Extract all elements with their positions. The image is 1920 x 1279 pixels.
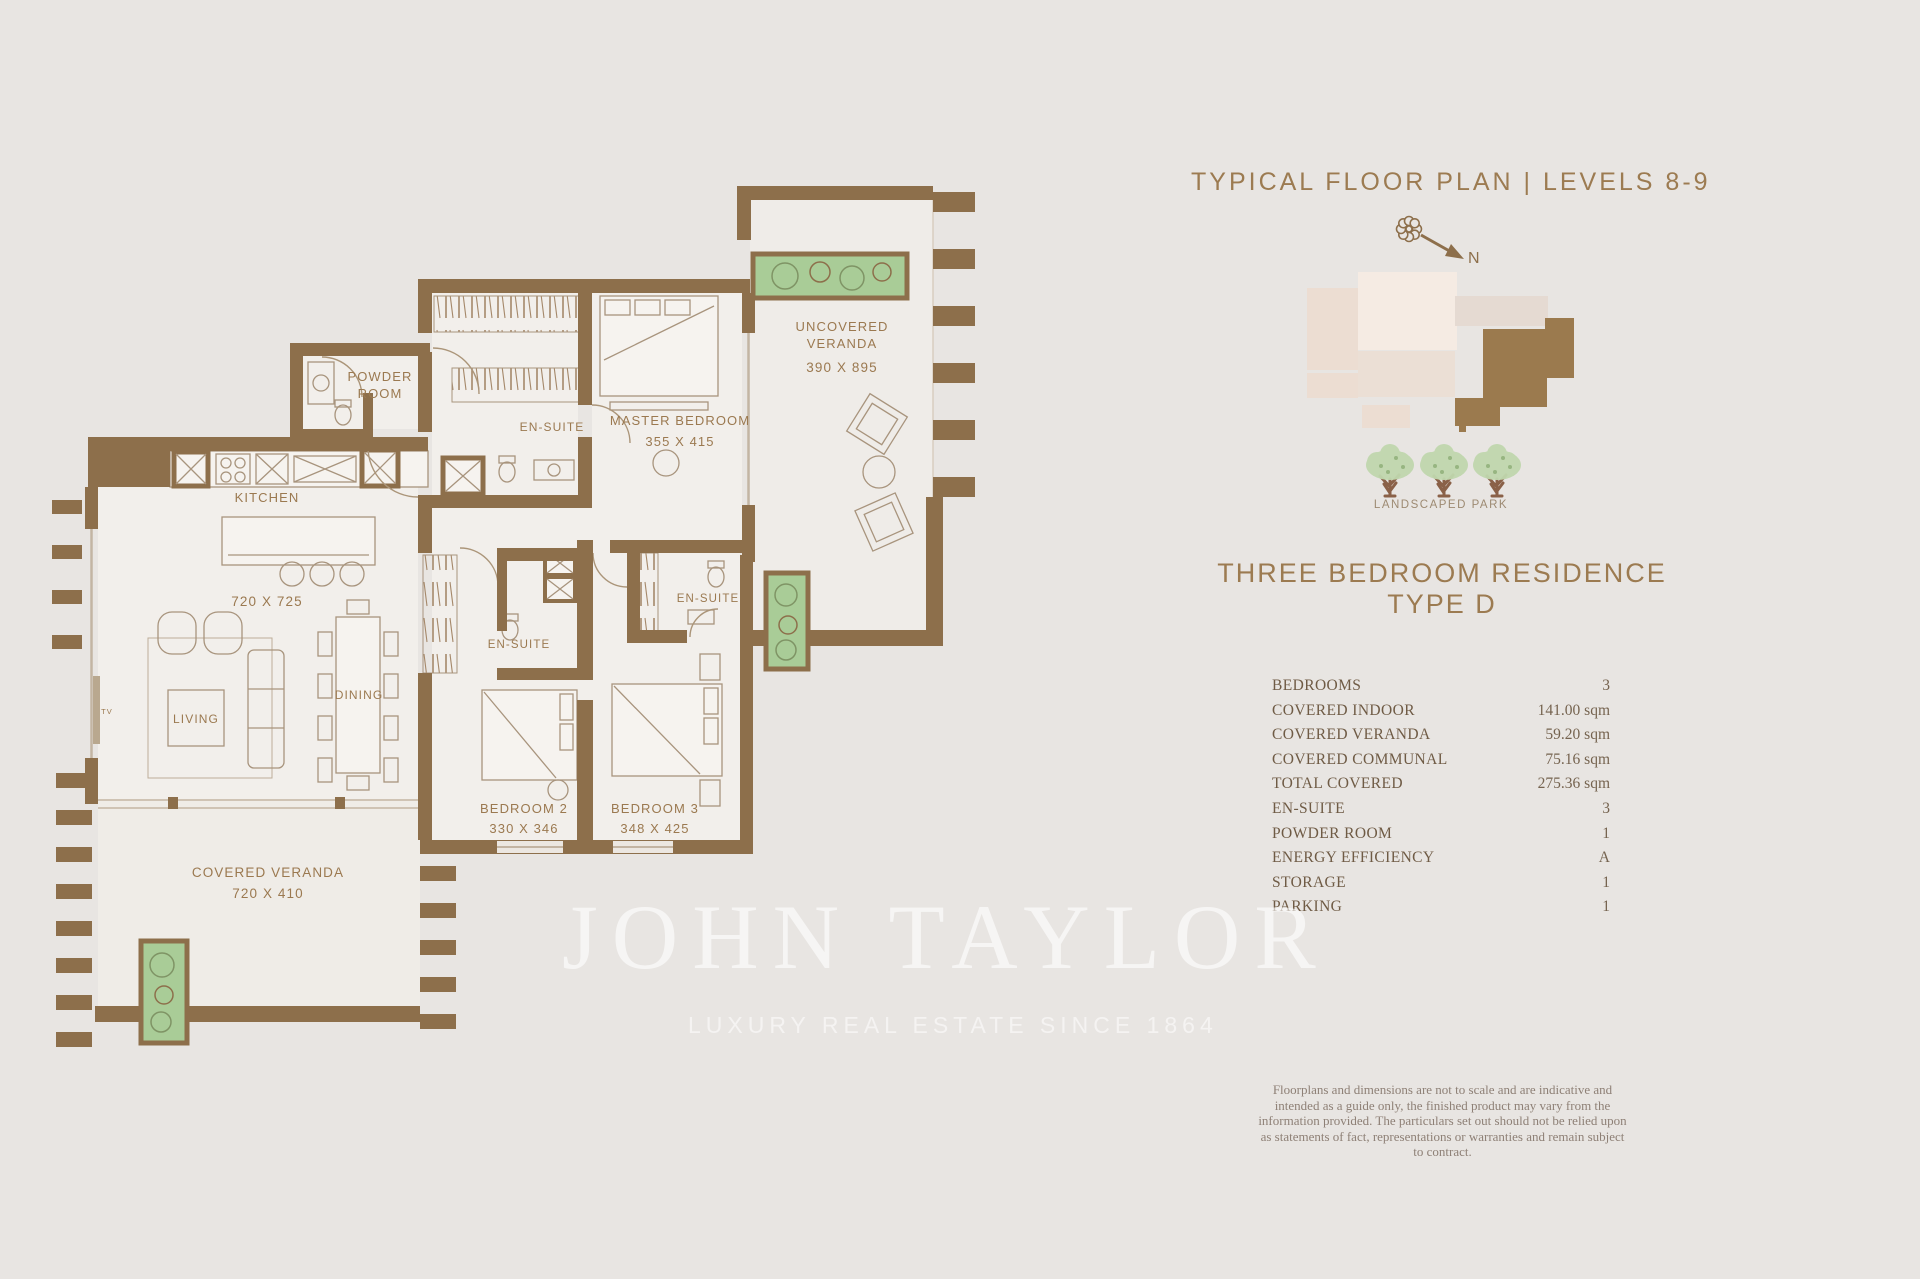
uncovered-veranda-dim: 390 X 895 bbox=[806, 360, 877, 375]
spec-value: 1 bbox=[1602, 898, 1610, 916]
spec-label: BEDROOMS bbox=[1272, 677, 1361, 695]
table-row: BEDROOMS3 bbox=[1272, 677, 1610, 702]
table-row: STORAGE1 bbox=[1272, 874, 1610, 899]
residence-title-line2: TYPE D bbox=[1192, 589, 1692, 620]
svg-text:ROOM: ROOM bbox=[358, 386, 403, 401]
spec-label: ENERGY EFFICIENCY bbox=[1272, 849, 1435, 867]
planter-icon bbox=[141, 941, 187, 1043]
table-row: ENERGY EFFICIENCYA bbox=[1272, 849, 1610, 874]
spec-value: 141.00 sqm bbox=[1538, 702, 1610, 720]
spec-label: EN-SUITE bbox=[1272, 800, 1345, 818]
covered-veranda-label: COVERED VERANDA bbox=[192, 865, 344, 880]
ensuite-bedroom3-label: EN-SUITE bbox=[677, 593, 739, 605]
site-plan-diagram bbox=[1307, 272, 1574, 432]
floor-plan: POWDER ROOM KITCHEN 720 X 725 LIVING DIN… bbox=[52, 186, 975, 1047]
bedroom3-label: BEDROOM 3 bbox=[611, 801, 699, 816]
spec-table: BEDROOMS3 COVERED INDOOR141.00 sqm COVER… bbox=[1272, 677, 1610, 923]
kitchen-dim: 720 X 725 bbox=[231, 594, 302, 609]
disclaimer-text: Floorplans and dimensions are not to sca… bbox=[1255, 1082, 1630, 1160]
table-row: TOTAL COVERED275.36 sqm bbox=[1272, 775, 1610, 800]
tv-unit bbox=[93, 676, 100, 744]
spec-label: COVERED VERANDA bbox=[1272, 726, 1431, 744]
kitchen-label: KITCHEN bbox=[235, 490, 300, 505]
north-label: N bbox=[1468, 250, 1480, 267]
table-row: COVERED INDOOR141.00 sqm bbox=[1272, 702, 1610, 727]
ensuite-master-label: EN-SUITE bbox=[520, 420, 585, 434]
table-row: COVERED COMMUNAL75.16 sqm bbox=[1272, 751, 1610, 776]
spec-value: 3 bbox=[1602, 800, 1610, 818]
spec-value: A bbox=[1599, 849, 1610, 867]
table-row: EN-SUITE3 bbox=[1272, 800, 1610, 825]
table-row: COVERED VERANDA59.20 sqm bbox=[1272, 726, 1610, 751]
page-title: TYPICAL FLOOR PLAN | LEVELS 8-9 bbox=[1191, 168, 1691, 197]
spec-label: COVERED INDOOR bbox=[1272, 702, 1415, 720]
spec-label: STORAGE bbox=[1272, 874, 1346, 892]
master-bedroom-label: MASTER BEDROOM bbox=[610, 413, 750, 428]
spec-label: POWDER ROOM bbox=[1272, 825, 1392, 843]
svg-text:VERANDA: VERANDA bbox=[807, 336, 878, 351]
spec-label: TOTAL COVERED bbox=[1272, 775, 1403, 793]
landscaped-park-trees bbox=[1366, 444, 1521, 496]
dining-label: DINING bbox=[335, 688, 384, 702]
brochure-page: POWDER ROOM KITCHEN 720 X 725 LIVING DIN… bbox=[0, 0, 1920, 1279]
tree-icon bbox=[1420, 444, 1468, 496]
spec-value: 3 bbox=[1602, 677, 1610, 695]
tv-label: TV bbox=[101, 707, 113, 716]
spec-label: COVERED COMMUNAL bbox=[1272, 751, 1448, 769]
planter-icon bbox=[753, 254, 907, 298]
living-label: LIVING bbox=[173, 712, 219, 726]
covered-veranda-dim: 720 X 410 bbox=[232, 886, 303, 901]
tree-icon bbox=[1366, 444, 1414, 496]
bedroom2-label: BEDROOM 2 bbox=[480, 801, 568, 816]
residence-title-line1: THREE BEDROOM RESIDENCE bbox=[1192, 558, 1692, 589]
master-bedroom-dim: 355 X 415 bbox=[645, 434, 714, 449]
powder-room-label: POWDER bbox=[347, 369, 412, 384]
spec-value: 1 bbox=[1602, 874, 1610, 892]
landscaped-park-label: LANDSCAPED PARK bbox=[1291, 499, 1591, 511]
spec-label: PARKING bbox=[1272, 898, 1342, 916]
spec-value: 1 bbox=[1602, 825, 1610, 843]
bedroom2-dim: 330 X 346 bbox=[489, 821, 558, 836]
spec-value: 275.36 sqm bbox=[1538, 775, 1610, 793]
compass-icon: N bbox=[1397, 217, 1480, 268]
spec-value: 59.20 sqm bbox=[1545, 726, 1610, 744]
ensuite-bedroom2-label: EN-SUITE bbox=[488, 639, 550, 651]
uncovered-veranda-label: UNCOVERED bbox=[796, 319, 889, 334]
planter-icon bbox=[766, 573, 808, 669]
bedroom3-dim: 348 X 425 bbox=[620, 821, 689, 836]
spec-value: 75.16 sqm bbox=[1545, 751, 1610, 769]
tree-icon bbox=[1473, 444, 1521, 496]
residence-title: THREE BEDROOM RESIDENCE TYPE D bbox=[1192, 558, 1692, 620]
table-row: PARKING1 bbox=[1272, 898, 1610, 923]
table-row: POWDER ROOM1 bbox=[1272, 825, 1610, 850]
